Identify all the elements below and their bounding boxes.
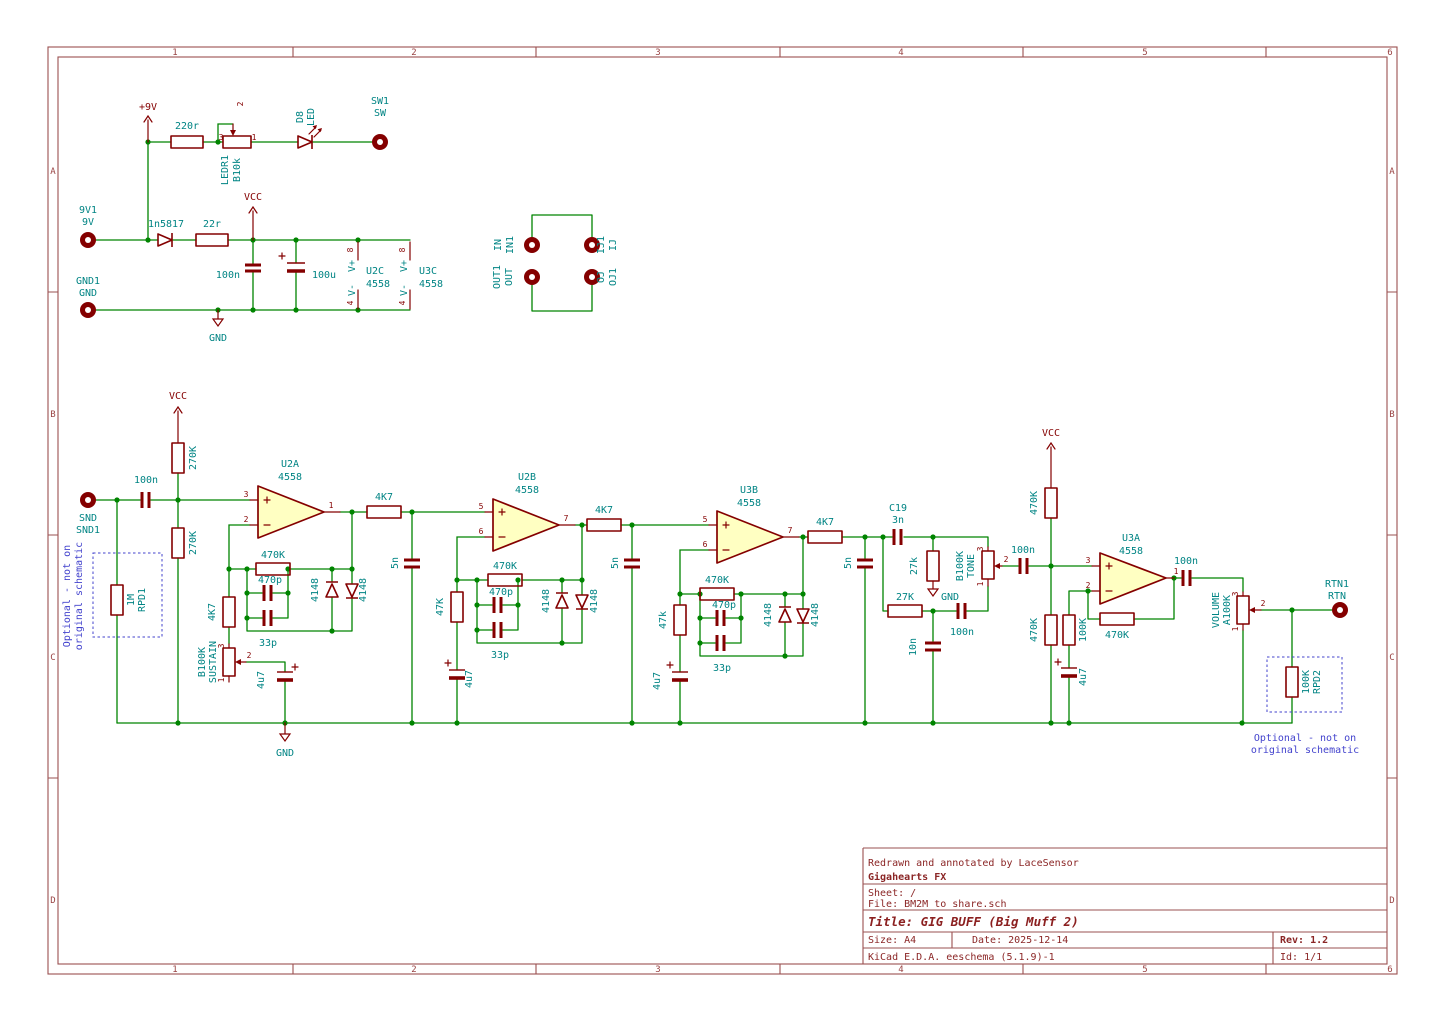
pin-number: 1: [252, 133, 257, 142]
pad-name: IJ: [608, 239, 619, 251]
optional-note: original schematic: [1251, 745, 1359, 756]
resistor-value: 470K: [1105, 630, 1129, 641]
resistor-value: 270K: [188, 531, 199, 555]
resistor-27k-series[interactable]: 27K: [888, 592, 922, 617]
diode-ref: D8: [295, 111, 306, 123]
resistor-470k-u3a-lower[interactable]: 470K: [1029, 615, 1057, 645]
resistor-270k-lower[interactable]: 270K: [172, 528, 199, 558]
optional-note: Optional - not on: [62, 545, 73, 647]
pad-name: 9V: [82, 217, 94, 228]
gnd-symbol-supply[interactable]: GND: [209, 310, 227, 344]
pad-ref: 9V1: [79, 205, 97, 216]
capacitor-33p-u3b[interactable]: 33p: [713, 635, 731, 674]
capacitor-5n-3[interactable]: 5n: [843, 557, 873, 569]
opamp-ref: U3B: [740, 485, 758, 496]
pin-name: V+: [399, 260, 410, 272]
cap-value: 4u7: [652, 672, 663, 690]
pin-number: 5: [703, 515, 708, 524]
cap-value: 100n: [134, 475, 158, 486]
pot-value: B100K: [197, 647, 208, 677]
pad-name: SW: [374, 108, 387, 119]
cap-value: 5n: [390, 557, 401, 569]
pad-ref: SND1: [76, 525, 100, 536]
col-label: 6: [1387, 48, 1392, 58]
capacitor-4u7-u3b[interactable]: 4u7: [652, 662, 688, 690]
row-label: C: [50, 653, 55, 663]
resistor-value: 470K: [1029, 491, 1040, 515]
resistor-value: 47k: [658, 611, 669, 629]
cap-value: 100n: [1174, 556, 1198, 567]
optional-note: Optional - not on: [1254, 733, 1356, 744]
sheet-frame: 1 2 3 4 5 6 1 2 3 4 5 6 A B C D A B C D: [48, 47, 1397, 975]
resistor-value: 470K: [705, 575, 729, 586]
file-field: File: BM2M to share.sch: [868, 899, 1006, 910]
power-label: VCC: [169, 391, 187, 402]
opamp-ref: U2B: [518, 472, 536, 483]
col-label: 6: [1387, 965, 1392, 975]
pot-name: SUSTAIN: [208, 641, 219, 683]
opamp-ref: U2A: [281, 459, 299, 470]
resistor-ref: RPD1: [137, 588, 148, 612]
optional-pulldown-rpd1[interactable]: 1M RPD1 Optional - not on original schem…: [62, 542, 162, 650]
pin-number: 6: [479, 527, 484, 536]
capacitor-100n-tone-low[interactable]: 100n: [950, 603, 974, 638]
cap-value: 470p: [258, 575, 282, 586]
pot-volume-a100k[interactable]: 3 1 2 VOLUME A100K: [1211, 591, 1266, 631]
resistor-470k-fb-u2a[interactable]: 470K: [256, 550, 290, 575]
pin-number: 8: [346, 247, 355, 252]
resistor-value: 4K7: [595, 505, 613, 516]
pin-number: 4: [398, 300, 407, 305]
pin-number: 1: [329, 501, 334, 510]
resistor-ref: RPD2: [1312, 670, 1323, 694]
resistor-value: 1M: [126, 594, 137, 606]
opamp-value: 4558: [419, 279, 443, 290]
resistor-47k-u3b[interactable]: 47k: [658, 605, 686, 635]
trimpot-ref: LEDR1: [220, 155, 231, 185]
capacitor-33p-u2a[interactable]: 33p: [259, 610, 277, 649]
led-d8[interactable]: D8 LED: [295, 108, 322, 149]
capacitor-5n-2[interactable]: 5n: [610, 557, 640, 569]
pad-9v1[interactable]: 9V1 9V: [79, 205, 97, 248]
schematic-canvas: 1 2 3 4 5 6 1 2 3 4 5 6 A B C D A B C D …: [0, 0, 1445, 1022]
opamp-u2c-power-unit[interactable]: 8 4 V+ V- U2C 4558: [346, 242, 390, 309]
opamp-u3c-power-unit[interactable]: 8 4 V+ V- U3C 4558: [398, 242, 443, 309]
cap-value: 10n: [908, 638, 919, 656]
pin-number: 2: [247, 651, 252, 660]
resistor-value: 100K: [1301, 670, 1312, 694]
resistor-4k7-coupling-1[interactable]: 4K7: [367, 492, 401, 518]
power-label: VCC: [244, 192, 262, 203]
pad-out1[interactable]: OUT1 OUT: [492, 265, 540, 289]
pad-in1[interactable]: IN IN1: [493, 236, 540, 254]
resistor-4k7-coupling-3[interactable]: 4K7: [808, 517, 842, 543]
pin-number: 3: [244, 490, 249, 499]
pad-gnd1[interactable]: GND1 GND: [76, 276, 100, 318]
resistor-value: 27k: [909, 557, 920, 575]
cap-value: 100u: [312, 270, 336, 281]
cap-value: 100n: [216, 270, 240, 281]
opamp-value: 4558: [737, 498, 761, 509]
power-flag-9v[interactable]: +9V: [139, 102, 157, 142]
pad-ref: SW1: [371, 96, 389, 107]
col-label: 4: [898, 965, 903, 975]
opamp-u2a[interactable]: 3 2 1 U2A 4558: [244, 459, 340, 538]
pin-number: 1: [976, 581, 985, 586]
pad-ref: OJ1: [608, 268, 619, 286]
gnd-label: GND: [209, 333, 227, 344]
diode-value: 4148: [589, 589, 600, 613]
capacitor-4u7-u2b[interactable]: 4u7: [445, 660, 475, 688]
capacitor-5n-1[interactable]: 5n: [390, 557, 420, 569]
rev-field: Rev: 1.2: [1280, 935, 1328, 946]
resistor-value: 4K7: [816, 517, 834, 528]
diode-1n5817[interactable]: 1n5817: [148, 219, 184, 247]
resistor-value: 220r: [175, 121, 199, 132]
cap-value: 5n: [843, 557, 854, 569]
sheet-field: Sheet: /: [868, 888, 916, 899]
capacitor-470p-u2a[interactable]: 470p: [258, 575, 282, 601]
opamp-ref: U3C: [419, 266, 437, 277]
diode-value: 4148: [358, 578, 369, 602]
pin-number: 4: [346, 300, 355, 305]
pad-ref: IN1: [505, 236, 516, 254]
gnd-symbol-sustain[interactable]: GND: [276, 723, 294, 759]
diode-pair-4148-u2a[interactable]: 4148 4148: [310, 578, 369, 602]
pin-number: 3: [976, 546, 985, 551]
col-label: 5: [1142, 48, 1147, 58]
pot-tone-b100k[interactable]: 3 1 2 B100K TONE: [955, 546, 1009, 586]
capacitor-4u7-sustain[interactable]: 4u7: [256, 664, 298, 689]
pin-number: 5: [479, 502, 484, 511]
pad-name: OJ: [596, 271, 607, 283]
cap-value: 4u7: [1078, 668, 1089, 686]
cap-value: 33p: [259, 638, 277, 649]
capacitor-100n-supply[interactable]: 100n: [216, 265, 261, 281]
col-label: 3: [655, 48, 660, 58]
resistor-value: 470K: [261, 550, 285, 561]
pad-name: OUT: [504, 268, 515, 286]
resistor-27k-shunt[interactable]: 27k: [909, 551, 939, 581]
resistor-270k-upper[interactable]: 270K: [172, 443, 199, 473]
pad-name: SND: [79, 513, 97, 524]
pot-value: B100K: [955, 551, 966, 581]
pin-number: 3: [1086, 556, 1091, 565]
row-label: B: [1389, 410, 1394, 420]
cap-value: 4u7: [464, 670, 475, 688]
col-label: 5: [1142, 965, 1147, 975]
diode-pair-4148-u3b[interactable]: 4148 4148: [763, 603, 821, 627]
pin-number: 7: [788, 526, 793, 535]
pad-name: RTN: [1328, 591, 1346, 602]
resistor-4k7-coupling-2[interactable]: 4K7: [587, 505, 621, 531]
company-name: Gigahearts FX: [868, 871, 946, 883]
pot-value: A100K: [1222, 595, 1233, 625]
capacitor-10n-tone[interactable]: 10n: [908, 638, 941, 656]
capacitor-33p-u2b[interactable]: 33p: [491, 622, 509, 661]
opamp-value: 4558: [366, 279, 390, 290]
diode-value: 4148: [310, 578, 321, 602]
diode-pair-4148-u2b[interactable]: 4148 4148: [541, 589, 600, 613]
cap-value: 470p: [489, 587, 513, 598]
resistor-100k-u3a[interactable]: 100K: [1063, 615, 1089, 645]
opamp-value: 4558: [1119, 546, 1143, 557]
cap-value: 33p: [713, 663, 731, 674]
capacitor-100u-supply[interactable]: 100u: [279, 253, 336, 281]
pot-name: VOLUME: [1211, 592, 1222, 628]
pin-number: 2: [1086, 581, 1091, 590]
pin-number: 8: [398, 247, 407, 252]
pad-ref: IJ1: [596, 236, 607, 254]
cap-value: 3n: [892, 515, 904, 526]
pin-number: 6: [703, 540, 708, 549]
col-label: 2: [411, 48, 416, 58]
trimpot-value: B10k: [232, 158, 243, 182]
schematic-title: Title: GIG BUFF (Big Muff 2): [868, 914, 1079, 929]
resistor-470k-fb-u3a[interactable]: 470K: [1100, 613, 1134, 641]
date-field: Date: 2025-12-14: [972, 935, 1068, 946]
opamp-ref: U3A: [1122, 533, 1140, 544]
opamp-value: 4558: [278, 472, 302, 483]
pot-sustain-b100k[interactable]: 3 1 2 B100K SUSTAIN: [197, 641, 252, 683]
diode-value: 4148: [810, 603, 821, 627]
pin-number: 1: [1231, 626, 1240, 631]
row-label: B: [50, 410, 55, 420]
diode-value: 1n5817: [148, 219, 184, 230]
id-field: Id: 1/1: [1280, 952, 1322, 963]
cap-value: 470p: [712, 600, 736, 611]
col-label: 2: [411, 965, 416, 975]
resistor-value: 4K7: [375, 492, 393, 503]
row-label: D: [50, 896, 55, 906]
diode-value: LED: [306, 108, 317, 126]
pad-ref: GND1: [76, 276, 100, 287]
capacitor-470p-u3b[interactable]: 470p: [712, 600, 736, 626]
diode-value: 4148: [763, 603, 774, 627]
capacitor-c19-3n[interactable]: C19 3n: [889, 503, 907, 545]
pin-name: V+: [347, 260, 358, 272]
pin-name: V-: [399, 284, 410, 296]
pad-name: IN: [493, 239, 504, 251]
resistor-value: 4K7: [207, 603, 218, 621]
gnd-label: GND: [941, 592, 959, 603]
pin-number: 2: [244, 515, 249, 524]
capacitor-470p-u2b[interactable]: 470p: [489, 587, 513, 613]
power-label: +9V: [139, 102, 157, 113]
opamp-u3a[interactable]: 3 2 1 U3A 4558: [1086, 533, 1179, 604]
resistor-value: 47K: [435, 598, 446, 616]
col-label: 1: [172, 48, 177, 58]
capacitor-100n-input[interactable]: 100n: [134, 475, 158, 508]
pin-number: 1: [1174, 567, 1179, 576]
resistor-47k-u2b[interactable]: 47K: [435, 592, 463, 622]
trimpot-ledr1[interactable]: 3 2 1 LEDR1 B10k: [219, 101, 257, 185]
optional-pulldown-rpd2[interactable]: 100K RPD2 Optional - not on original sch…: [1251, 657, 1359, 756]
gnd-symbol-tone[interactable]: GND: [928, 581, 959, 603]
cap-value: 5n: [610, 557, 621, 569]
col-label: 4: [898, 48, 903, 58]
diode-value: 4148: [541, 589, 552, 613]
opamp-value: 4558: [515, 485, 539, 496]
cap-value: 100n: [950, 627, 974, 638]
col-label: 1: [172, 965, 177, 975]
resistor-470k-u3a-upper[interactable]: 470K: [1029, 488, 1057, 518]
power-flag-vcc-main[interactable]: VCC: [244, 192, 262, 240]
opamp-u2b[interactable]: 5 6 7 U2B 4558: [479, 472, 575, 551]
wires: [96, 124, 1332, 723]
row-label: D: [1389, 896, 1394, 906]
resistor-22r[interactable]: 22r: [196, 219, 228, 246]
pad-name: GND: [79, 288, 97, 299]
pad-ij1[interactable]: IJ1 IJ: [584, 236, 619, 254]
resistor-value: 22r: [203, 219, 221, 230]
row-label: A: [1389, 167, 1395, 177]
pin-number: 2: [236, 101, 245, 106]
pin-number: 3: [219, 133, 224, 142]
pin-number: 2: [1004, 555, 1009, 564]
capacitor-4u7-u3a[interactable]: 4u7: [1055, 659, 1089, 686]
opamp-ref: U2C: [366, 266, 384, 277]
cap-ref: C19: [889, 503, 907, 514]
resistor-470k-fb-u3b[interactable]: 470K: [700, 575, 734, 600]
pot-name: TONE: [966, 554, 977, 578]
resistor-4k7-sustain[interactable]: 4K7: [207, 597, 235, 627]
gnd-label: GND: [276, 748, 294, 759]
row-label: C: [1389, 653, 1394, 663]
tool-field: KiCad E.D.A. eeschema (5.1.9)-1: [868, 952, 1055, 963]
resistor-value: 27K: [896, 592, 914, 603]
pad-oj1[interactable]: OJ OJ1: [584, 268, 619, 286]
power-flag-vcc-u3a[interactable]: VCC: [1042, 428, 1060, 488]
pin-number: 2: [1261, 599, 1266, 608]
title-block: Redrawn and annotated by LaceSensor Giga…: [863, 848, 1387, 964]
pin-number: 7: [564, 514, 569, 523]
kicad-schematic-sheet: 1 2 3 4 5 6 1 2 3 4 5 6 A B C D A B C D …: [0, 0, 1445, 1022]
size-field: Size: A4: [868, 935, 916, 946]
capacitor-100n-wiper[interactable]: 100n: [1011, 545, 1035, 574]
pad-snd[interactable]: SND SND1: [76, 492, 100, 536]
resistor-value: 100K: [1078, 618, 1089, 642]
power-flag-vcc-bias[interactable]: VCC: [169, 391, 187, 443]
opamp-u3b[interactable]: 5 6 7 U3B 4558: [703, 485, 799, 563]
pad-rtn[interactable]: RTN1 RTN: [1325, 579, 1349, 618]
pin-name: V-: [347, 284, 358, 296]
optional-note: original schematic: [74, 542, 85, 650]
credit-line: Redrawn and annotated by LaceSensor: [868, 858, 1079, 869]
row-label: A: [50, 167, 56, 177]
resistor-value: 270K: [188, 446, 199, 470]
power-label: VCC: [1042, 428, 1060, 439]
resistor-value: 470K: [1029, 618, 1040, 642]
resistor-220r[interactable]: 220r: [171, 121, 203, 148]
cap-value: 100n: [1011, 545, 1035, 556]
pad-ref: RTN1: [1325, 579, 1349, 590]
col-label: 3: [655, 965, 660, 975]
resistor-value: 470K: [493, 561, 517, 572]
pad-ref: OUT1: [492, 265, 503, 289]
pad-sw1[interactable]: SW1 SW: [371, 96, 389, 150]
cap-value: 4u7: [256, 671, 267, 689]
cap-value: 33p: [491, 650, 509, 661]
